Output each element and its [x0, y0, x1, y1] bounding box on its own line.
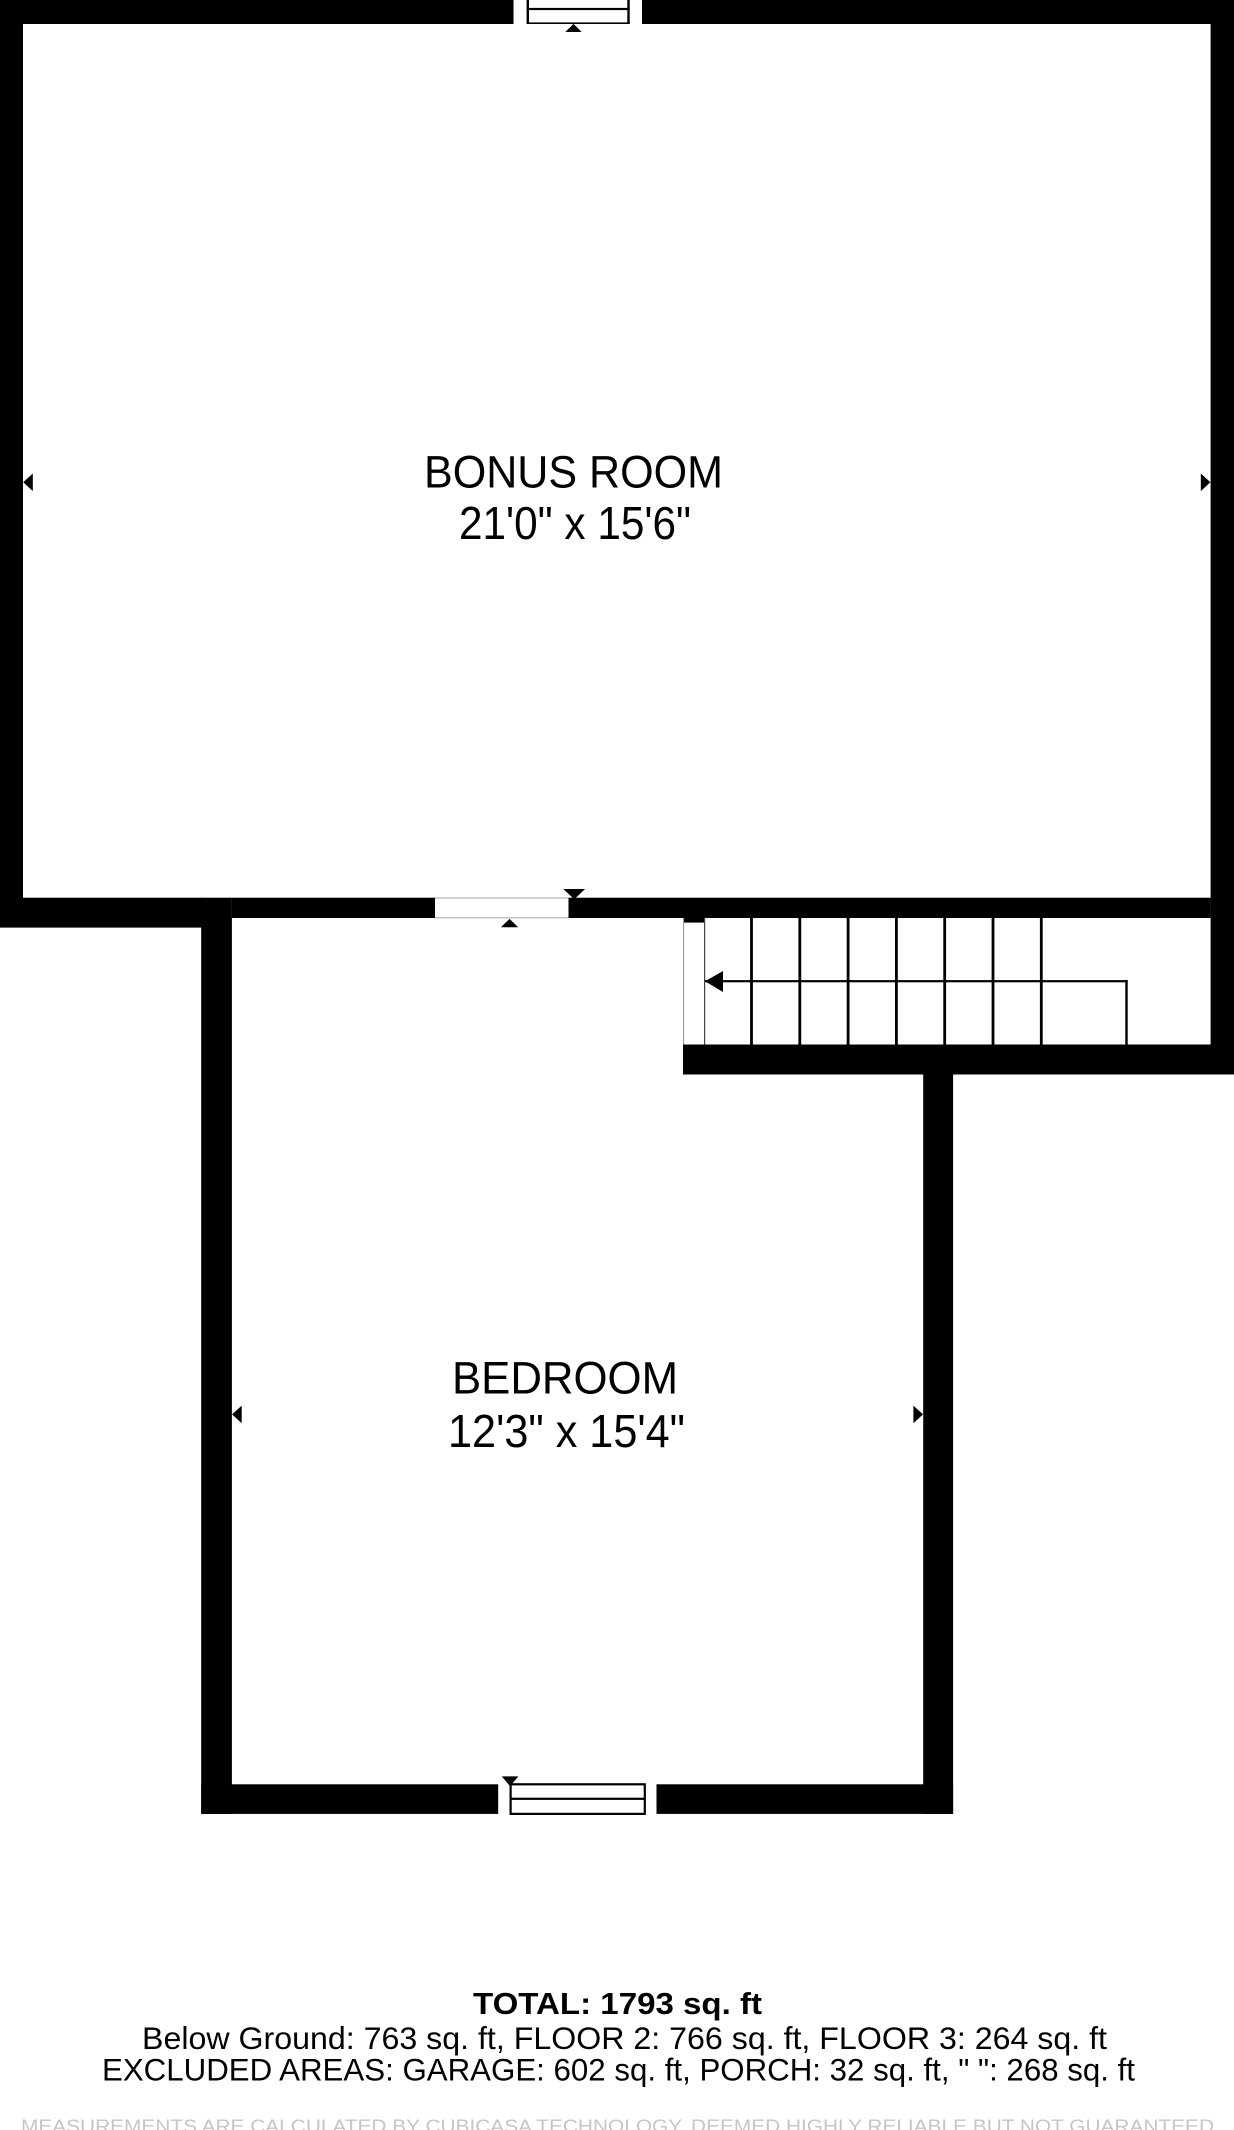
svg-text:12'3" x 15'4": 12'3" x 15'4": [448, 1405, 685, 1457]
svg-text:BONUS ROOM: BONUS ROOM: [424, 447, 723, 498]
svg-text:BEDROOM: BEDROOM: [452, 1353, 678, 1404]
svg-text:21'0" x 15'6": 21'0" x 15'6": [459, 497, 691, 549]
svg-text:EXCLUDED AREAS: GARAGE: 602 sq: EXCLUDED AREAS: GARAGE: 602 sq. ft, PORC…: [102, 2052, 1135, 2088]
svg-text:MEASUREMENTS ARE CALCULATED BY: MEASUREMENTS ARE CALCULATED BY CUBICASA …: [21, 2117, 1214, 2130]
svg-text:TOTAL: 1793 sq. ft: TOTAL: 1793 sq. ft: [473, 1986, 762, 2021]
